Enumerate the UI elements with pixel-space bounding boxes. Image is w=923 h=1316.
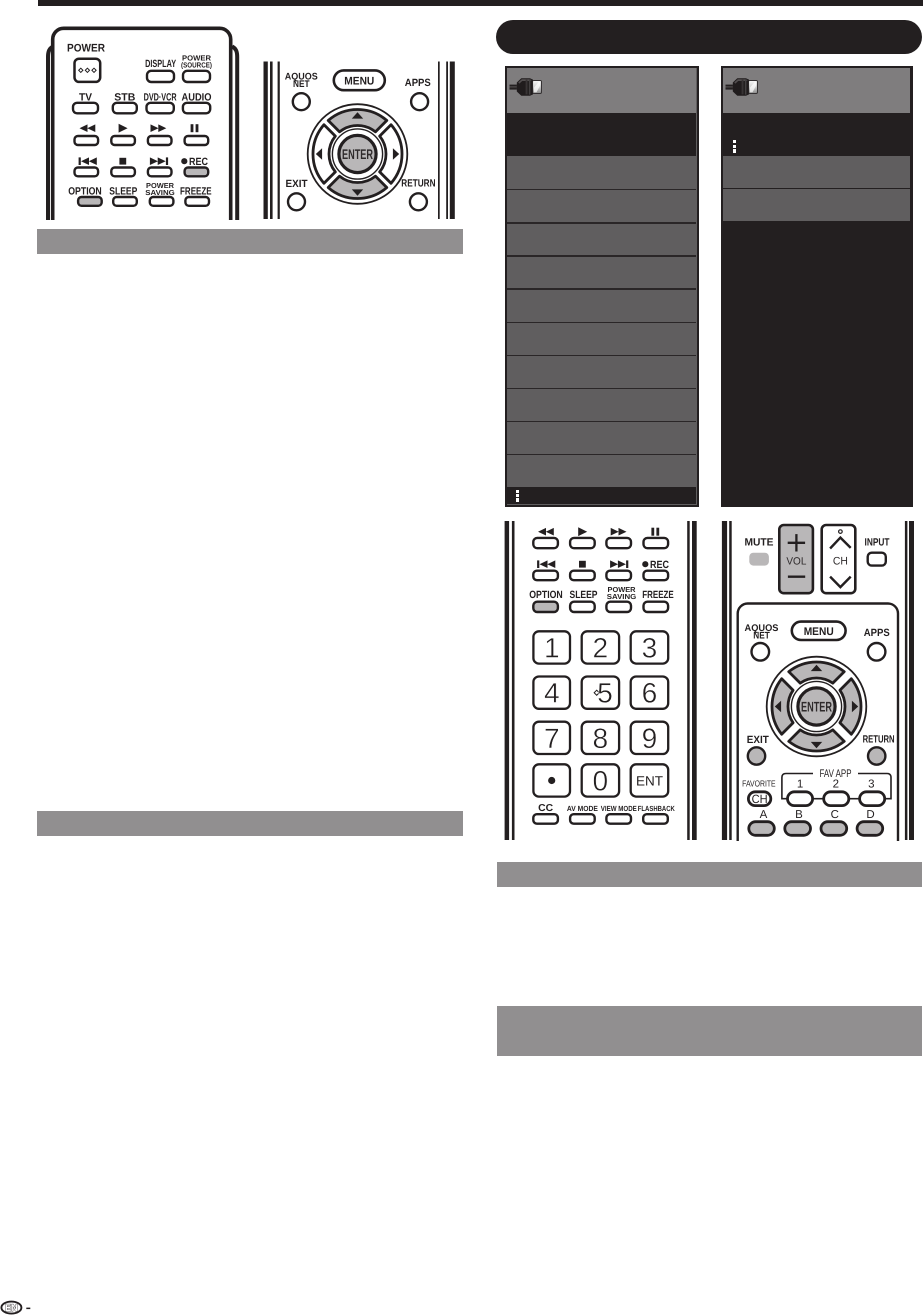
svg-text:7: 7 (544, 722, 560, 754)
svg-text:RETURN: RETURN (401, 178, 435, 190)
svg-text:AUDIO: AUDIO (182, 91, 212, 103)
svg-text:CC: CC (538, 803, 553, 814)
svg-text:VOL: VOL (786, 556, 806, 568)
svg-text:3: 3 (868, 779, 874, 791)
svg-text:DISPLAY: DISPLAY (145, 58, 176, 70)
svg-text:D: D (866, 809, 874, 821)
svg-text:EXIT: EXIT (286, 178, 309, 190)
svg-text:OPTION: OPTION (529, 589, 563, 601)
svg-text:APPS: APPS (864, 627, 890, 639)
svg-text:CH: CH (752, 792, 768, 806)
svg-text:9: 9 (642, 722, 658, 754)
svg-text:(SOURCE): (SOURCE) (181, 60, 212, 69)
svg-text:INPUT: INPUT (865, 537, 890, 549)
svg-text:SAVING: SAVING (607, 592, 637, 601)
svg-text:EXIT: EXIT (747, 734, 770, 746)
svg-text:TV: TV (79, 91, 92, 103)
svg-text:SAVING: SAVING (145, 188, 175, 197)
svg-text:2: 2 (833, 779, 839, 791)
svg-text:A: A (760, 809, 768, 821)
svg-text:4: 4 (544, 677, 560, 709)
svg-text:ENTER: ENTER (342, 146, 373, 162)
svg-text:VIEW MODE: VIEW MODE (601, 804, 637, 813)
svg-text:1: 1 (797, 779, 803, 791)
svg-text:NET: NET (293, 79, 310, 90)
svg-text:SLEEP: SLEEP (570, 589, 598, 601)
svg-text:REC: REC (189, 156, 208, 168)
svg-text:STB: STB (114, 91, 135, 103)
svg-text:ENTER: ENTER (801, 699, 832, 715)
svg-text:RETURN: RETURN (863, 733, 895, 745)
svg-text:DVD·VCR: DVD·VCR (144, 91, 177, 103)
svg-text:B: B (795, 809, 803, 821)
svg-text:MUTE: MUTE (745, 537, 774, 549)
svg-text:FAVORITE: FAVORITE (742, 778, 776, 788)
svg-text:3: 3 (642, 632, 658, 664)
svg-text:NET: NET (753, 631, 770, 642)
svg-text:8: 8 (593, 722, 609, 754)
svg-text:FREEZE: FREEZE (642, 589, 674, 601)
svg-text:CH: CH (833, 556, 848, 568)
svg-text:5: 5 (597, 677, 613, 709)
svg-text:ENT: ENT (636, 773, 663, 788)
svg-text:APPS: APPS (405, 77, 431, 89)
svg-text:AV MODE: AV MODE (567, 804, 598, 813)
svg-text:6: 6 (642, 677, 658, 709)
svg-text:POWER: POWER (67, 43, 105, 55)
svg-text:0: 0 (593, 765, 609, 797)
svg-text:MENU: MENU (344, 75, 374, 87)
svg-text:EN: EN (5, 1303, 18, 1314)
svg-text:C: C (831, 809, 839, 821)
svg-text:REC: REC (650, 559, 669, 571)
svg-text:MENU: MENU (804, 626, 834, 638)
svg-text:FLASHBACK: FLASHBACK (638, 804, 676, 813)
svg-text:2: 2 (593, 632, 609, 664)
svg-text:1: 1 (544, 632, 560, 664)
